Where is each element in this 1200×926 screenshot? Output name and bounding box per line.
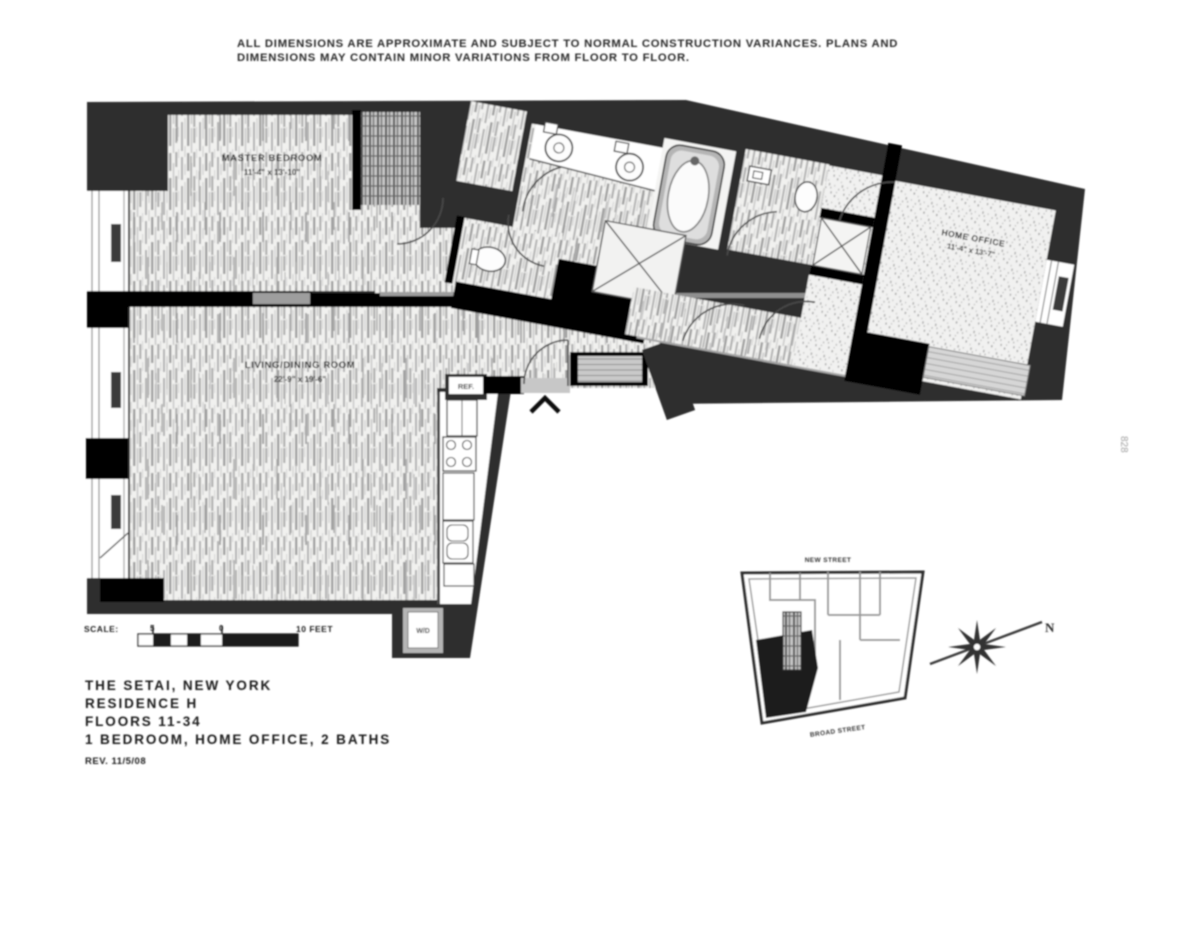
svg-text:11'-4" x 13'-10": 11'-4" x 13'-10": [244, 168, 301, 177]
svg-text:REV. 11/5/08: REV. 11/5/08: [85, 756, 146, 767]
svg-text:1 BEDROOM, HOME OFFICE, 2 BATH: 1 BEDROOM, HOME OFFICE, 2 BATHS: [85, 732, 391, 747]
svg-text:THE SETAI, NEW YORK: THE SETAI, NEW YORK: [85, 678, 272, 693]
svg-text:NEW STREET: NEW STREET: [805, 557, 852, 564]
svg-text:22'-9" x 19'-6": 22'-9" x 19'-6": [274, 375, 327, 384]
svg-text:W/D: W/D: [416, 628, 430, 635]
svg-text:LIVING/DINING ROOM: LIVING/DINING ROOM: [245, 360, 356, 371]
svg-text:10 FEET: 10 FEET: [296, 624, 333, 634]
svg-text:N: N: [1045, 620, 1055, 635]
svg-text:SCALE:: SCALE:: [84, 624, 119, 634]
svg-text:ALL DIMENSIONS ARE APPROXIMATE: ALL DIMENSIONS ARE APPROXIMATE AND SUBJE…: [237, 38, 898, 50]
svg-text:5: 5: [150, 624, 155, 633]
svg-text:FLOORS 11-34: FLOORS 11-34: [85, 714, 202, 729]
svg-text:REF.: REF.: [458, 382, 474, 391]
svg-text:0: 0: [219, 624, 224, 633]
svg-text:DIMENSIONS MAY CONTAIN MINOR V: DIMENSIONS MAY CONTAIN MINOR VARIATIONS …: [237, 52, 690, 64]
svg-text:MASTER BEDROOM: MASTER BEDROOM: [222, 153, 323, 164]
svg-text:828: 828: [1118, 436, 1129, 453]
svg-text:BROAD STREET: BROAD STREET: [810, 724, 867, 739]
svg-text:RESIDENCE H: RESIDENCE H: [85, 696, 198, 711]
